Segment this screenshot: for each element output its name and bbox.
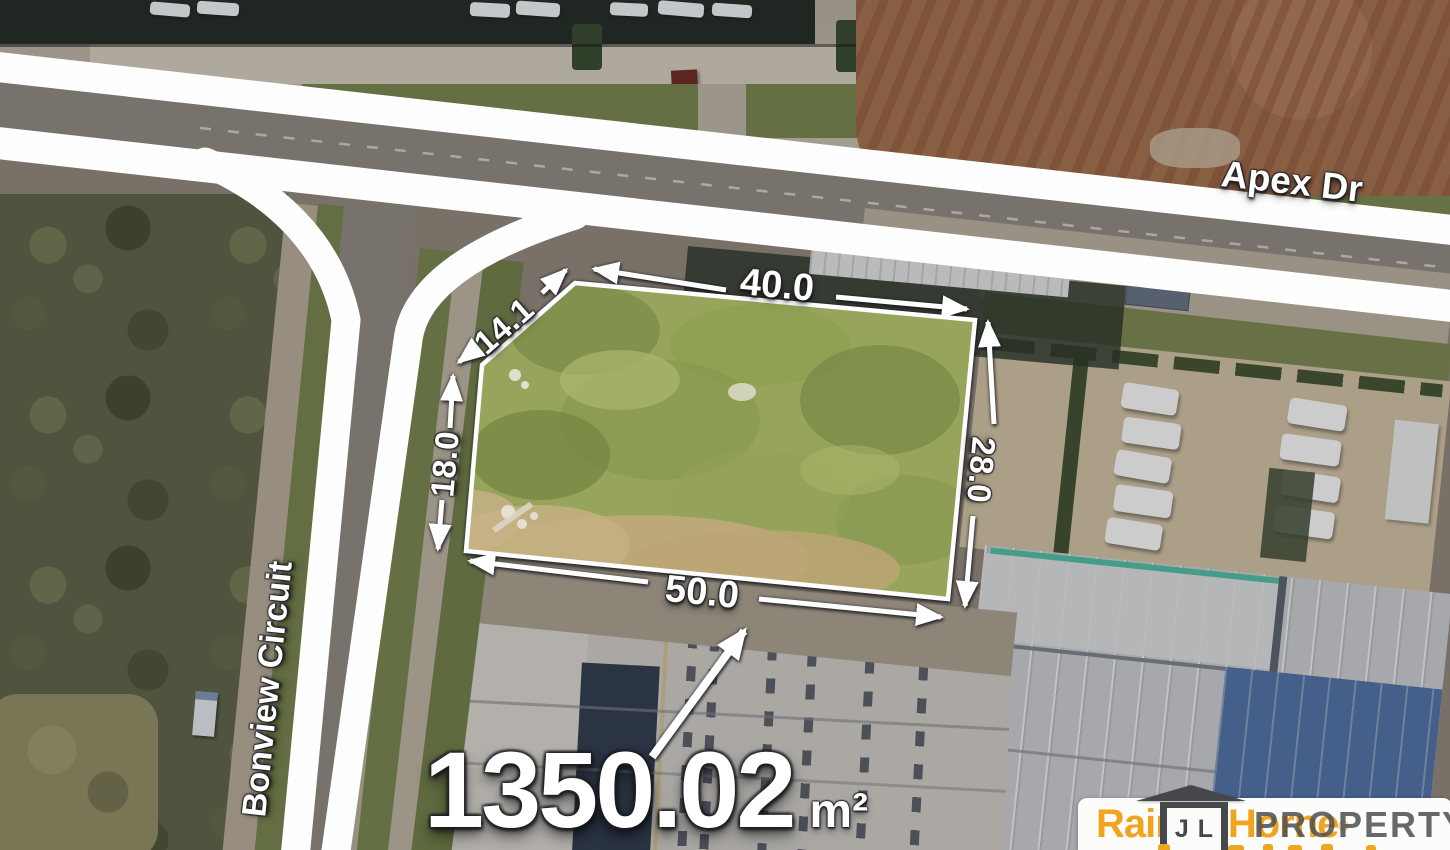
- tagline-letter-tops: [1263, 844, 1273, 850]
- tagline-letter-tops: [1158, 844, 1170, 850]
- tagline-letter-tops: [1321, 844, 1333, 850]
- dimension-bottom: 50.0: [663, 568, 741, 618]
- aerial-map-screenshot: Apex Dr Bonview Circuit 40.0 14.1 18.0 2…: [0, 0, 1450, 850]
- parcel-annotation: [0, 0, 1450, 850]
- dim-28-arrow-down: [965, 516, 973, 606]
- dim-18-arrow-down: [438, 500, 442, 549]
- area-value: 1350.02: [424, 738, 793, 842]
- area-unit: m²: [809, 788, 868, 836]
- house-icon: JL: [1160, 802, 1228, 850]
- partner-logo-text: PROPERTY: [1254, 802, 1450, 848]
- dimension-right: 28.0: [959, 435, 1003, 504]
- dim-141-arrow-down: [459, 347, 478, 362]
- dim-141-arrow-up: [542, 270, 566, 293]
- dimension-left: 18.0: [423, 429, 467, 498]
- branding-card: Raine&Horne® PROPERTY JL: [1078, 798, 1450, 850]
- tagline-letter-tops: [1228, 845, 1244, 850]
- dimension-top: 40.0: [738, 261, 816, 311]
- house-roof-icon: [1136, 785, 1246, 801]
- partner-initials: JL: [1166, 815, 1222, 844]
- dim-28-arrow-up: [988, 322, 994, 424]
- dim-50-arrow-right: [759, 599, 941, 617]
- area-callout: 1350.02 m²: [424, 738, 868, 842]
- house-icon-inner: JL: [1167, 808, 1221, 850]
- dim-18-arrow-up: [450, 376, 453, 428]
- tagline-letter-tops: [1288, 845, 1302, 850]
- tagline-letter-tops: [1366, 845, 1376, 850]
